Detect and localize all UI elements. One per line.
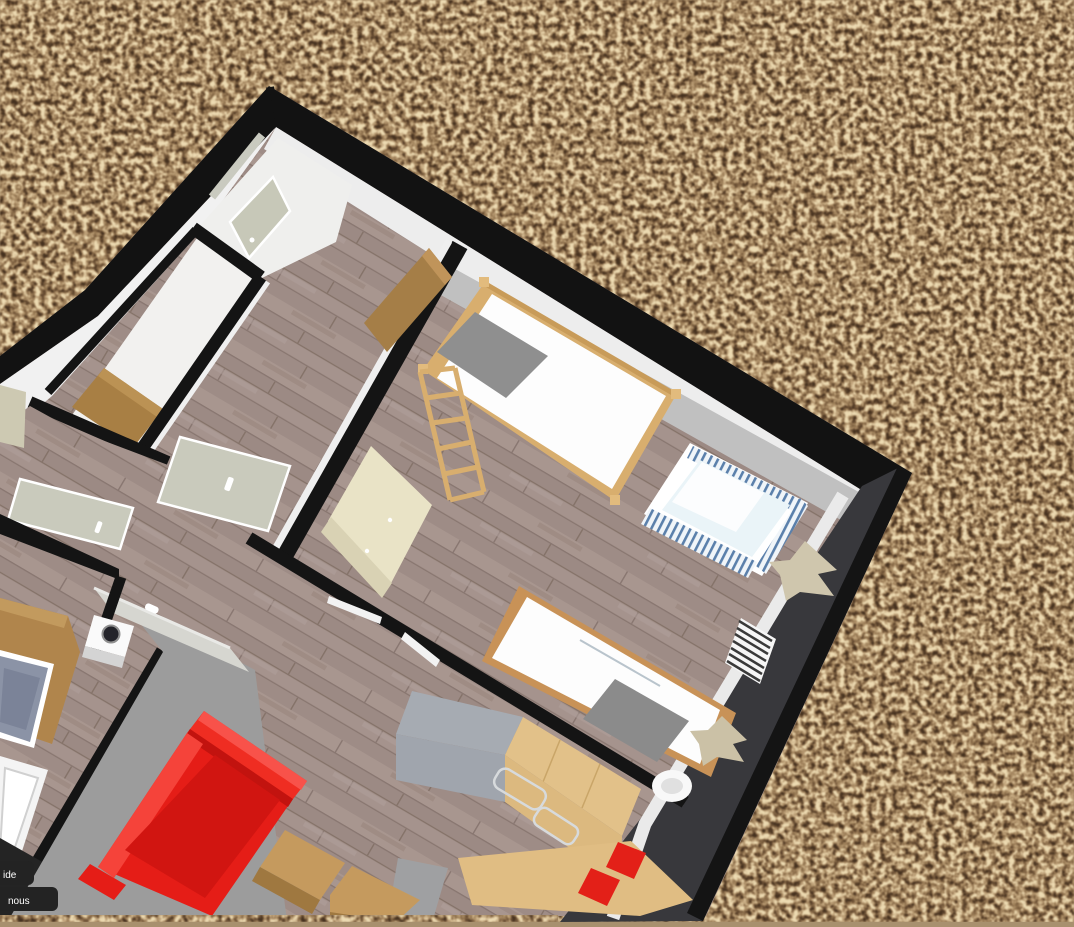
- svg-text:nous: nous: [8, 896, 30, 907]
- svg-text:ide: ide: [3, 870, 17, 881]
